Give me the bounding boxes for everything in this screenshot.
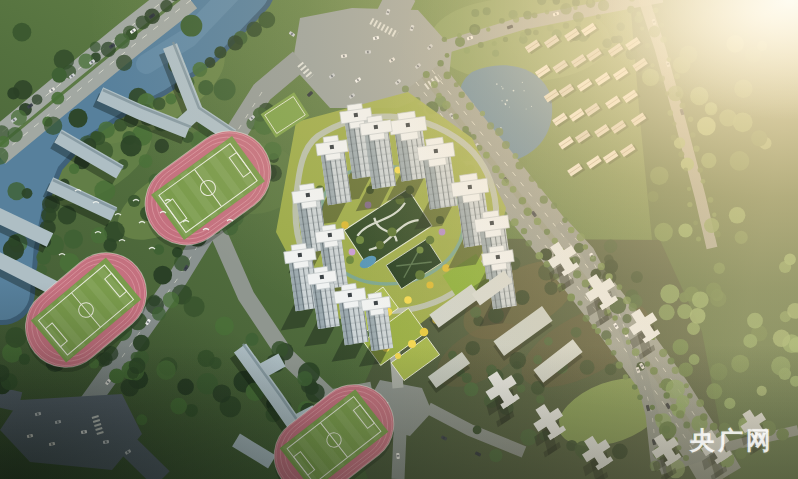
aerial-rendering: 央广网 (0, 0, 798, 479)
bottom-shade (0, 0, 798, 479)
cnr-watermark: 央广网 (690, 424, 774, 457)
scene-canvas (0, 0, 798, 479)
